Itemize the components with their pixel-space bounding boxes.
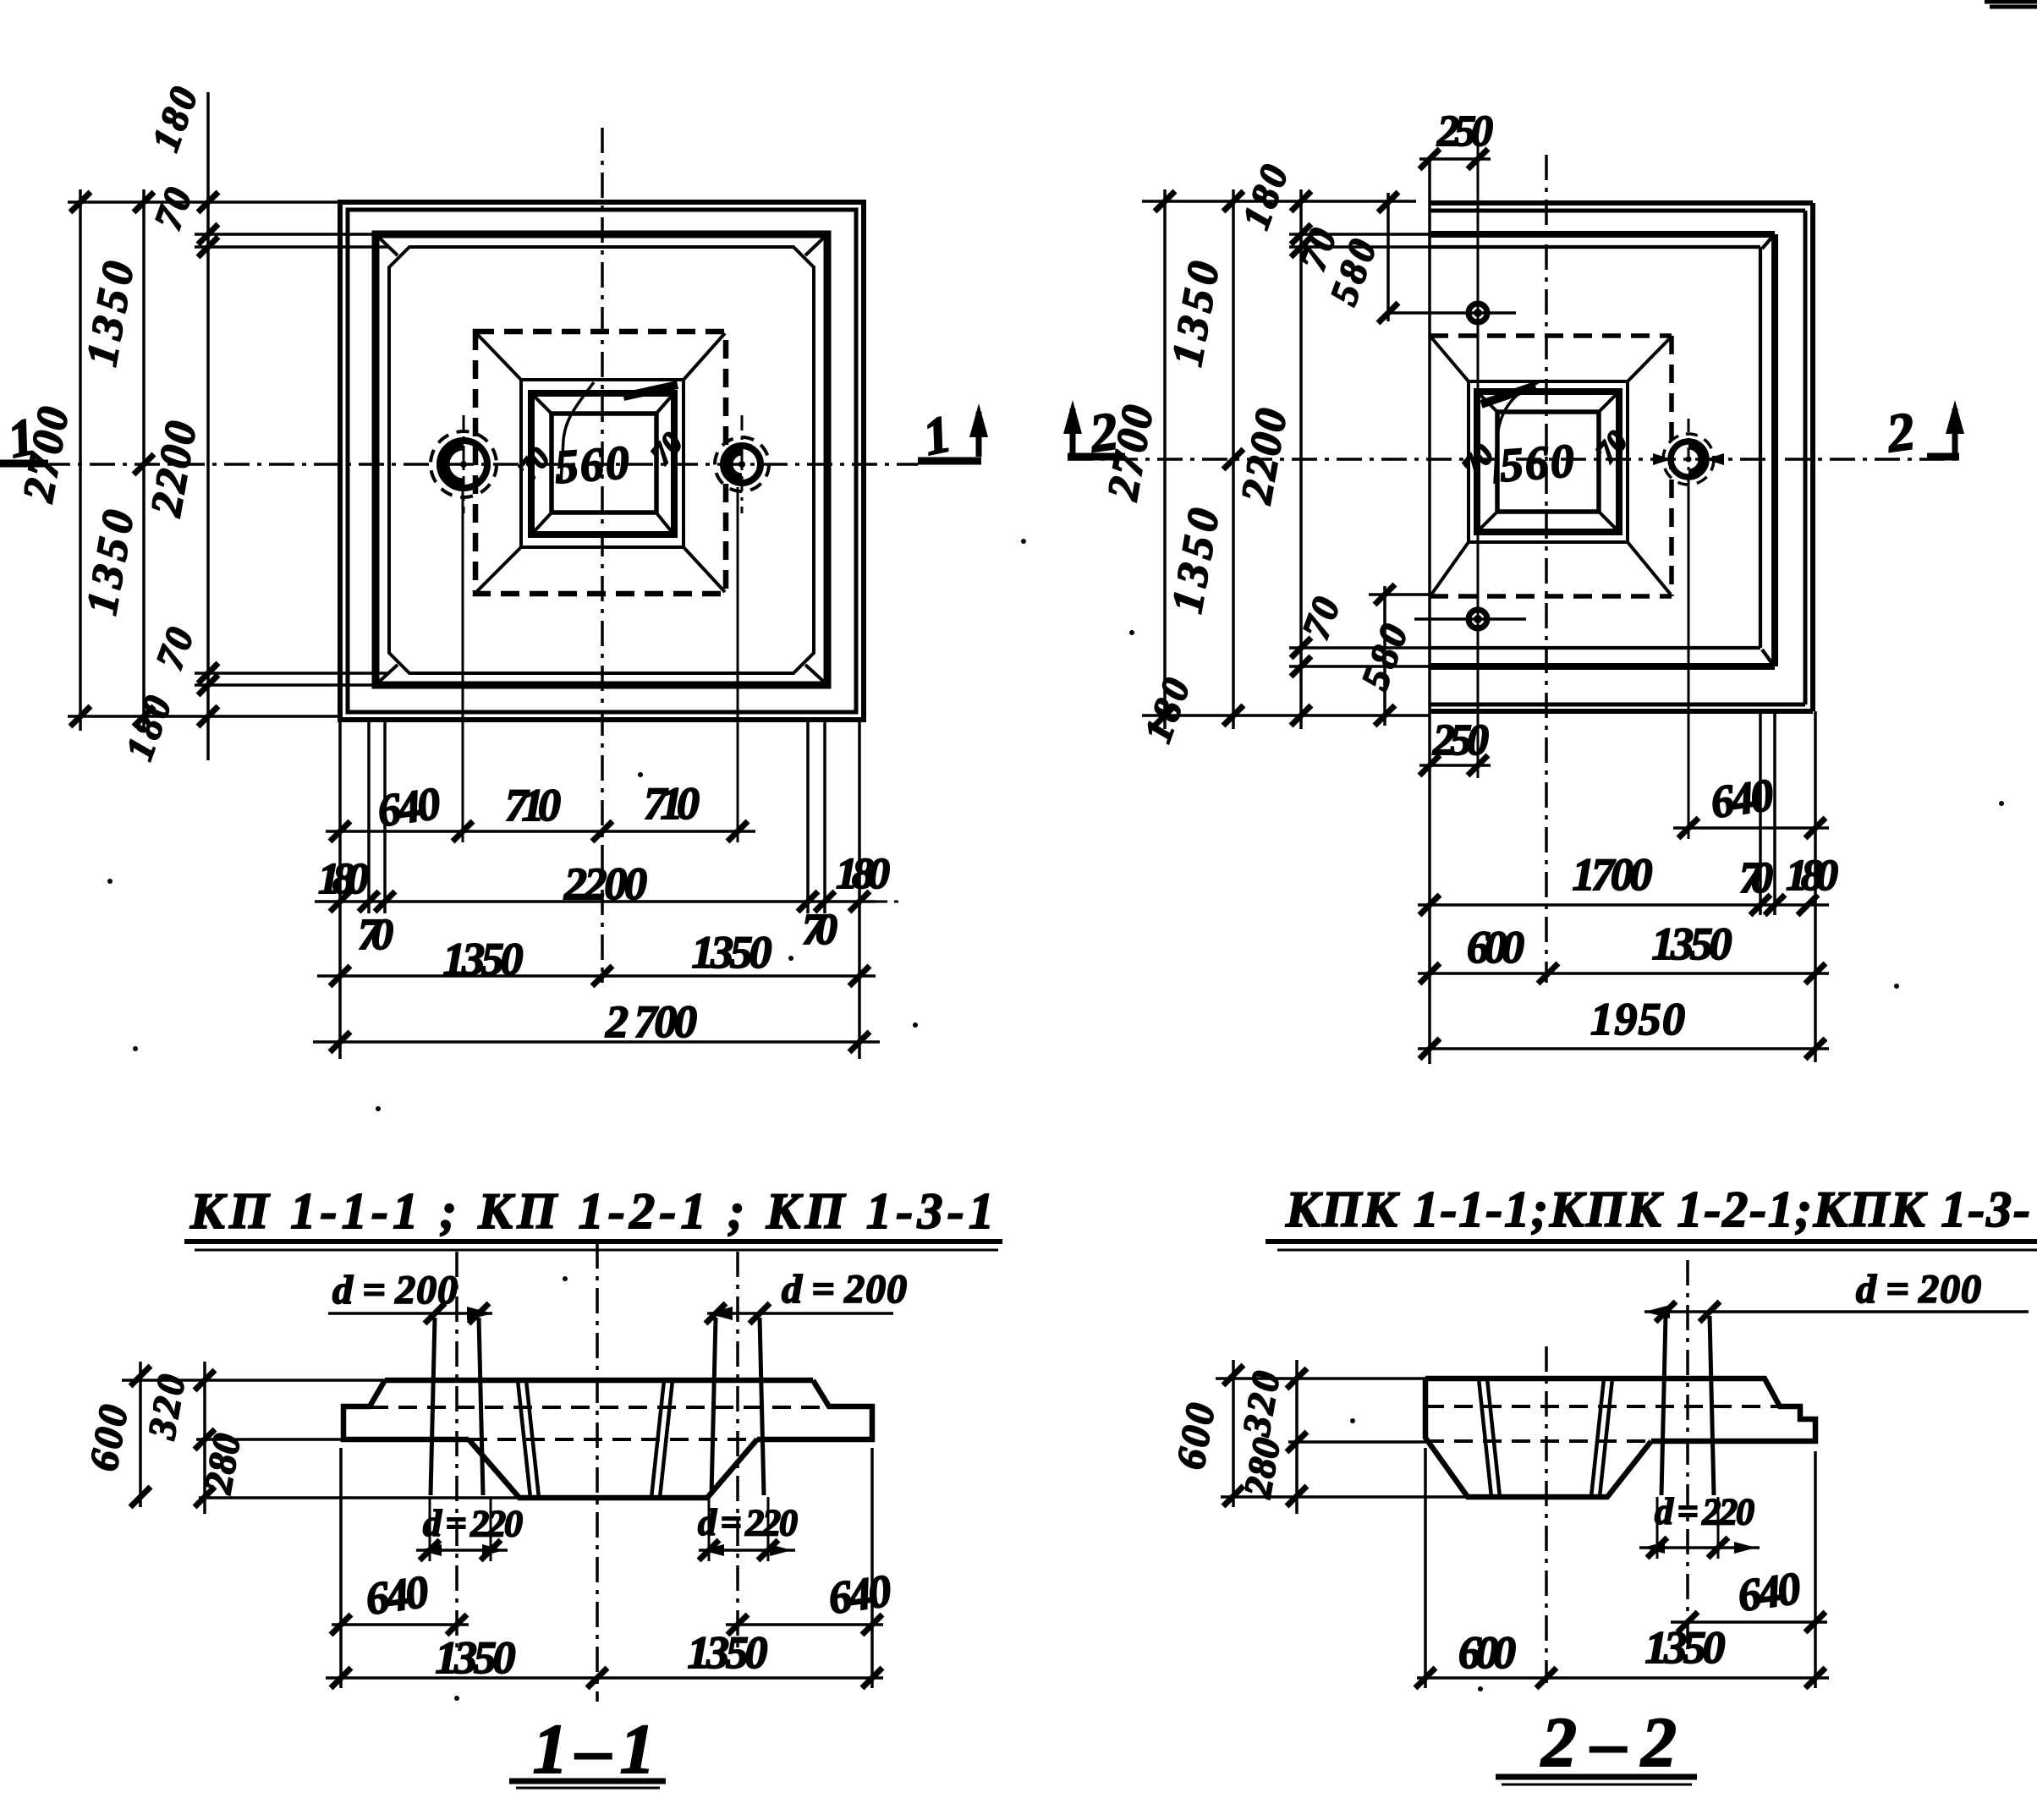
svg-text:180: 180 [1786, 852, 1838, 900]
svg-text:640: 640 [826, 1565, 895, 1624]
svg-text:1350: 1350 [1645, 1622, 1726, 1673]
svg-text:560: 560 [1498, 435, 1576, 492]
svg-text:1350: 1350 [436, 1632, 516, 1683]
svg-text:d = 220: d = 220 [698, 1502, 798, 1543]
svg-text:180: 180 [318, 855, 369, 903]
svg-text:250: 250 [1432, 716, 1489, 765]
svg-text:70: 70 [1739, 854, 1773, 902]
svg-text:1700: 1700 [1573, 849, 1653, 900]
svg-text:2200: 2200 [563, 858, 647, 909]
svg-text:640: 640 [1735, 1562, 1804, 1621]
svg-text:640: 640 [1708, 769, 1777, 828]
svg-text:710: 710 [505, 780, 561, 831]
svg-text:2 700: 2 700 [605, 996, 697, 1047]
svg-text:d = 200: d = 200 [332, 1268, 458, 1313]
svg-text:1350: 1350 [688, 1627, 768, 1678]
svg-text:1 – 1: 1 – 1 [533, 1710, 656, 1789]
svg-text:КПК 1-1-1;КПК 1-2-1;КПК 1-3-: КПК 1-1-1;КПК 1-2-1;КПК 1-3- [1285, 1181, 2030, 1237]
svg-text:1950: 1950 [1590, 994, 1685, 1044]
svg-text:d = 200: d = 200 [782, 1267, 907, 1312]
svg-text:1350: 1350 [443, 934, 524, 984]
svg-text:250: 250 [1436, 107, 1493, 156]
svg-text:1350: 1350 [692, 927, 772, 978]
svg-text:70: 70 [802, 906, 837, 954]
svg-text:1350: 1350 [1652, 918, 1732, 969]
svg-text:70: 70 [358, 911, 393, 959]
svg-text:640: 640 [375, 777, 444, 836]
svg-text:d = 200: d = 200 [1856, 1267, 1981, 1312]
svg-text:d = 220: d = 220 [423, 1503, 523, 1544]
svg-text:600: 600 [1467, 922, 1524, 973]
svg-text:710: 710 [644, 778, 700, 829]
svg-text:640: 640 [363, 1565, 432, 1625]
svg-text:600: 600 [1458, 1627, 1516, 1678]
svg-text:180: 180 [836, 850, 890, 898]
svg-text:2 – 2: 2 – 2 [1540, 1703, 1677, 1782]
svg-text:d = 220: d = 220 [1655, 1491, 1754, 1532]
svg-text:КП 1-1-1 ; КП 1-2-1 ; КП 1-3-1: КП 1-1-1 ; КП 1-2-1 ; КП 1-3-1 [189, 1183, 994, 1239]
